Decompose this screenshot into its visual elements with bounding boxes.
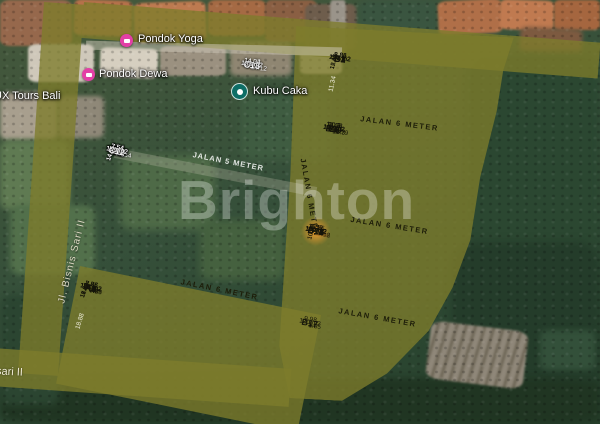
plot-b3: B3216 m28.84 bbox=[339, 58, 341, 60]
lodging-pin-icon[interactable] bbox=[82, 68, 95, 81]
poi-label-pondok-dewa[interactable]: Pondok Dewa bbox=[99, 68, 168, 80]
plot-a6: A6104 m28.3612.56 bbox=[90, 287, 92, 289]
place-pin-icon[interactable] bbox=[231, 83, 248, 100]
poi-label-ux-tours-bali[interactable]: UX Tours Bali bbox=[0, 90, 60, 102]
satellite-map-canvas: 11.34B1105 m28.8612.47B2116 m28.8612.45B… bbox=[0, 0, 600, 424]
lodging-pin-icon[interactable] bbox=[120, 34, 133, 47]
dim-label: 8.84 bbox=[334, 51, 347, 59]
plot-c12: C12109 m27.5414.55 bbox=[116, 150, 118, 152]
street-label-bottom: sari II bbox=[0, 365, 23, 378]
plot-b10: B10131 m214.33 bbox=[333, 128, 335, 130]
plot-c13: C13137 m214.04 bbox=[251, 64, 253, 66]
poi-label-kubu-caka[interactable]: Kubu Caka bbox=[253, 85, 307, 97]
brighton-watermark: Brighton bbox=[178, 168, 415, 232]
poi-label-pondok-yoga[interactable]: Pondok Yoga bbox=[138, 33, 203, 45]
